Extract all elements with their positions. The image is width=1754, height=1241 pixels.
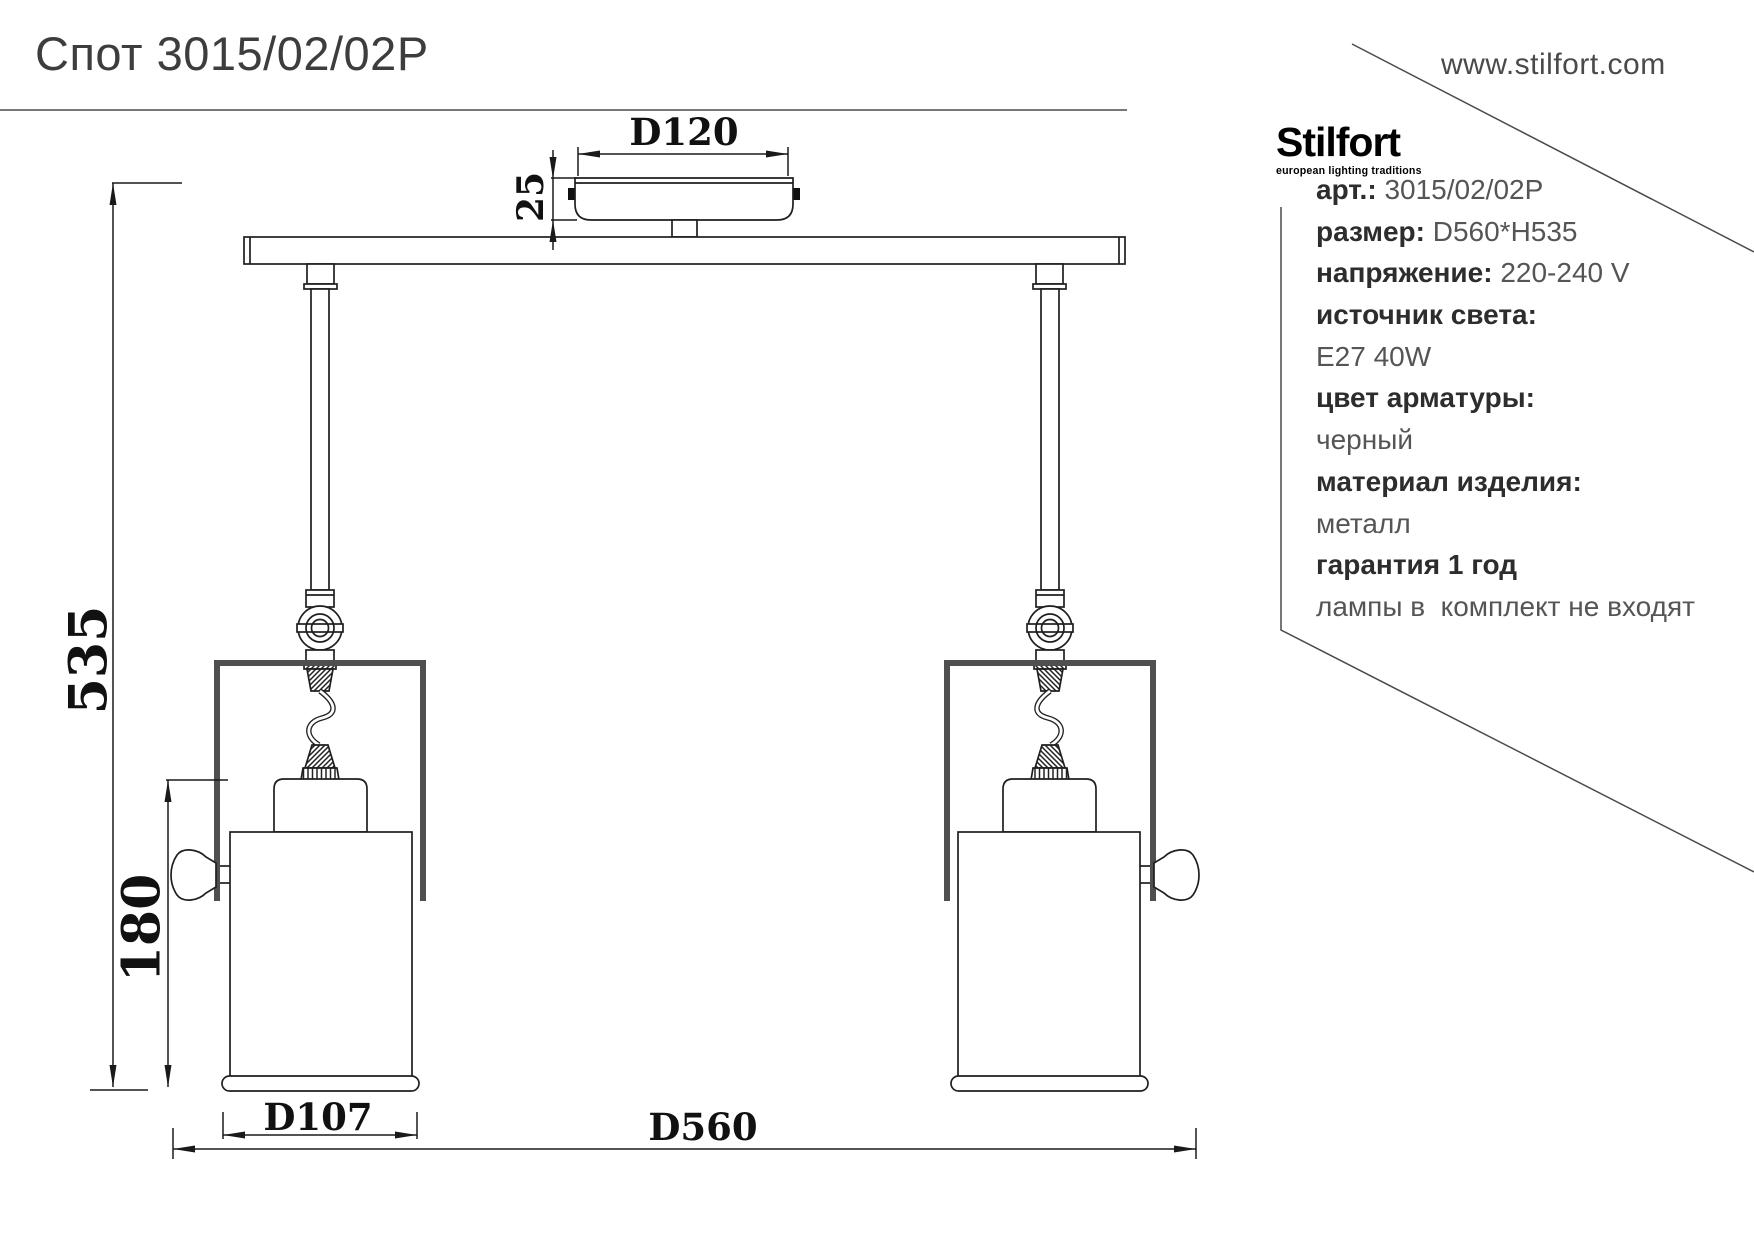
canopy-side-screw-right: [793, 188, 800, 200]
label-shade-diameter: D107: [263, 1095, 372, 1139]
technical-drawing: D120 25 535 180 D107 D560: [0, 0, 1754, 1241]
lamp-unit-left: [171, 264, 423, 1091]
shade-bottom-rim: [222, 1076, 419, 1091]
canopy-stem-tab: [672, 220, 697, 237]
label-overall-height: 535: [59, 606, 120, 715]
canopy-body: [575, 178, 793, 220]
rod-bottom-collar: [306, 590, 334, 607]
cord-grip-lower: [305, 745, 335, 768]
suspension-rod: [311, 289, 329, 590]
rod-connector: [307, 264, 334, 284]
swivel-screw-bar: [297, 624, 343, 632]
label-overall-width: D560: [648, 1105, 757, 1149]
lamp-holder: [274, 779, 367, 832]
cord-grip-upper: [307, 669, 333, 691]
adjust-knob: [171, 850, 216, 900]
datasheet-page: Спот 3015/02/02P www.stilfort.com Stilfo…: [0, 0, 1754, 1241]
mounting-bar: [244, 237, 1125, 264]
label-canopy-diameter: D120: [629, 110, 738, 154]
shade-cylinder: [230, 832, 412, 1084]
label-canopy-height: 25: [510, 172, 552, 222]
label-shade-height: 180: [112, 874, 173, 983]
fixture-drawing: [171, 178, 1199, 1091]
canopy-side-screw-left: [568, 188, 575, 200]
lamp-unit-right: [947, 264, 1199, 1091]
ceiling-canopy: [568, 178, 800, 237]
panel-diagonal-top: [1352, 44, 1754, 252]
panel-boundary: [1281, 207, 1754, 872]
